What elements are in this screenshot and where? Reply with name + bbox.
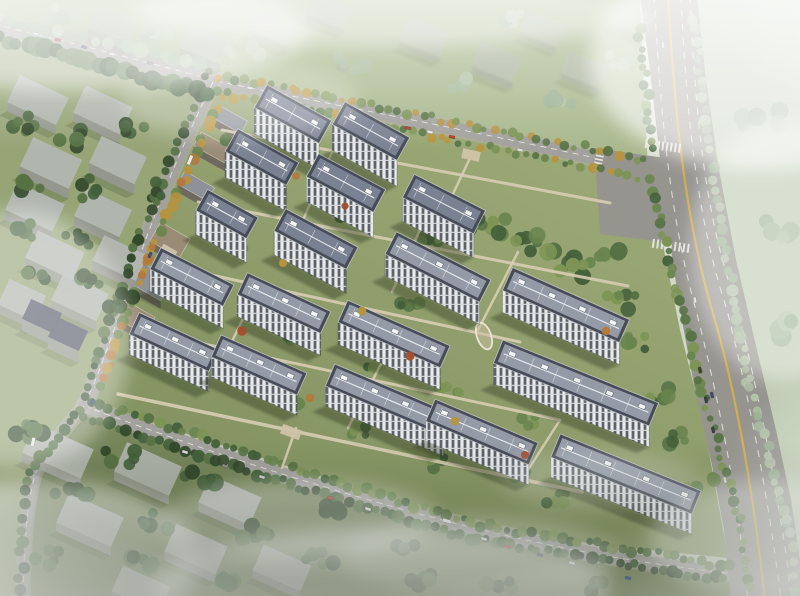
vignette-overlay [0,0,800,596]
aerial-rendering [0,0,800,596]
aerial-rendering-stage [0,0,800,596]
